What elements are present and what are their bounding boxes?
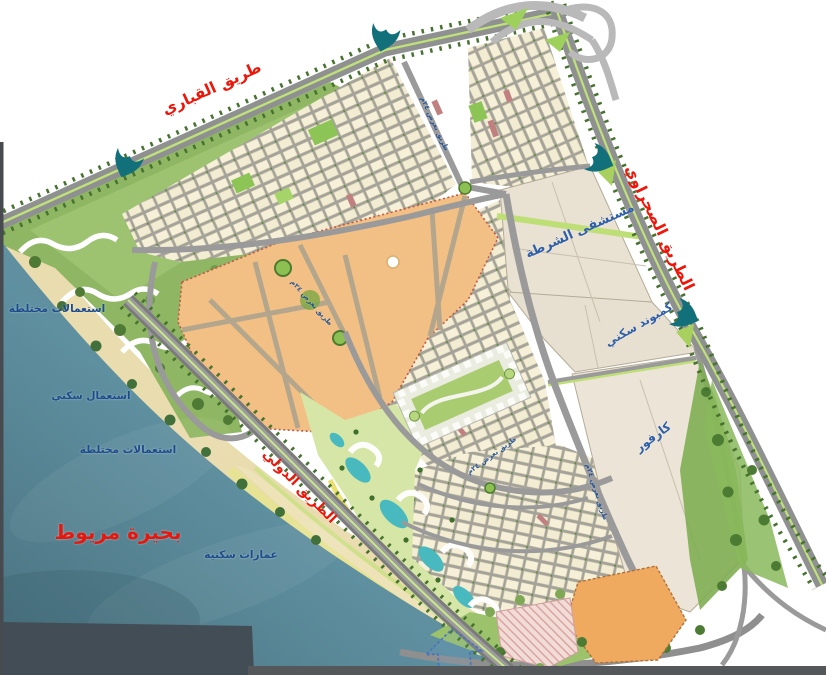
- zone-label-mixed-uses-1: استعمالات مختلطة: [9, 304, 105, 315]
- master-plan-map: طريق القباري الطريق الصحراوي الطريق الدو…: [0, 0, 826, 675]
- zone-label-residential-use: استعمال سكني: [51, 391, 130, 402]
- zone-label-mixed-uses-2: استعمالات مختلطة: [80, 445, 176, 456]
- map-canvas: [0, 0, 826, 675]
- zone-label-residential-buildings: عمارات سكنية: [204, 550, 277, 561]
- lake-label: بحيرة مريوط: [55, 522, 182, 542]
